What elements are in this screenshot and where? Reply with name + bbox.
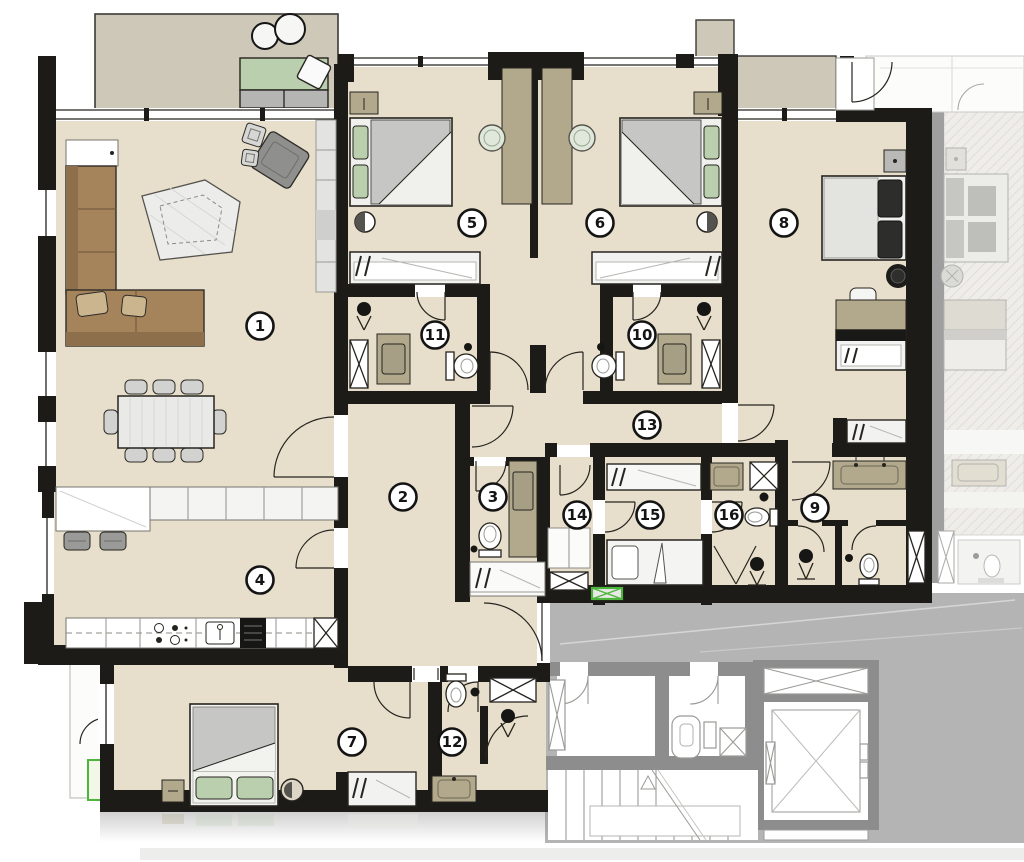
- room-number-marker-15: 15: [637, 502, 664, 529]
- room-number-marker-9: 9: [802, 495, 829, 522]
- svg-text:4: 4: [255, 571, 265, 589]
- svg-text:15: 15: [640, 506, 661, 524]
- bed-icon: [620, 118, 722, 206]
- svg-text:1: 1: [255, 317, 265, 335]
- bed-icon: [350, 118, 452, 206]
- pillow-icon: [353, 126, 368, 159]
- pillow-icon: [704, 126, 719, 159]
- wardrobe-hanger-icon: [350, 252, 480, 284]
- wardrobe-hanger-icon: [592, 252, 722, 284]
- room-number-marker-11: 11: [422, 322, 449, 349]
- built-in-cabinet: [316, 120, 336, 292]
- room-14: [548, 528, 590, 590]
- window-band: [584, 56, 718, 67]
- svg-text:8: 8: [779, 214, 789, 232]
- single-bed-icon: [607, 540, 703, 585]
- svg-text:3: 3: [488, 488, 498, 506]
- svg-text:12: 12: [442, 733, 463, 751]
- room-number-marker-2: 2: [390, 484, 417, 511]
- daybed-icon: [240, 54, 332, 108]
- room-number-marker-4: 4: [247, 567, 274, 594]
- rug-icon: [142, 180, 240, 260]
- double-washbasin-icon: [833, 457, 906, 489]
- room-number-marker-8: 8: [771, 210, 798, 237]
- wardrobe-hanger-icon: [836, 330, 906, 370]
- desk-chair-icon: [569, 125, 595, 151]
- bed-icon: [190, 704, 278, 806]
- svg-text:11: 11: [425, 326, 446, 344]
- shower-head-icon: [697, 302, 711, 316]
- pillow-icon: [704, 165, 719, 198]
- common-lobby: [557, 676, 655, 756]
- side-table-icon: [241, 149, 259, 167]
- terrace-bedroom8: [734, 56, 836, 112]
- room-number-marker-10: 10: [629, 322, 656, 349]
- pillow-icon: [237, 777, 273, 799]
- window-band: [736, 108, 836, 121]
- desk-icon: [502, 68, 532, 204]
- floor-reflection: [100, 812, 548, 842]
- floor-plan-canvas: 12345678910111213141516: [0, 0, 1024, 862]
- svg-text:13: 13: [637, 416, 658, 434]
- washbasin-icon: [432, 776, 476, 802]
- svg-text:16: 16: [719, 506, 740, 524]
- bedside-lamp-icon: [355, 212, 375, 232]
- bedside-lamp-icon: [281, 779, 303, 801]
- page-shadow-band: [140, 848, 1024, 860]
- window-band: [54, 108, 338, 121]
- room-number-marker-12: 12: [439, 729, 466, 756]
- pillow-icon: [353, 165, 368, 198]
- svg-text:9: 9: [810, 499, 820, 517]
- floor-plan-page: 12345678910111213141516: [0, 0, 1024, 862]
- wardrobe-hanger-icon: [847, 420, 906, 443]
- room-number-marker-3: 3: [480, 484, 507, 511]
- wardrobe-hanger-icon: [607, 464, 701, 490]
- desk-icon: [542, 68, 572, 204]
- desk-icon: [836, 300, 906, 330]
- adjacent-top-corridor: [866, 56, 1024, 112]
- desk-chair-icon: [479, 125, 505, 151]
- room-number-marker-13: 13: [634, 412, 661, 439]
- hall-closet: [470, 562, 545, 596]
- svg-text:7: 7: [347, 733, 357, 751]
- room-number-marker-16: 16: [716, 502, 743, 529]
- common-area: [545, 593, 1024, 843]
- svg-text:5: 5: [467, 214, 477, 232]
- kitchen-counter: [66, 618, 338, 648]
- room-number-marker-7: 7: [339, 729, 366, 756]
- entry-door-opening: [537, 603, 550, 663]
- svg-text:2: 2: [398, 488, 408, 506]
- pillow-icon: [196, 777, 232, 799]
- shower-head-icon: [357, 302, 371, 316]
- wardrobe-hanger-icon: [336, 772, 416, 806]
- window-band: [354, 56, 488, 67]
- svg-text:10: 10: [632, 326, 653, 344]
- kitchen-sink-icon: [206, 622, 234, 644]
- svg-text:14: 14: [567, 506, 588, 524]
- bedside-lamp-icon: [697, 212, 717, 232]
- elevator-2: [764, 830, 868, 840]
- room-number-marker-14: 14: [564, 502, 591, 529]
- room-number-marker-5: 5: [459, 210, 486, 237]
- room-number-marker-1: 1: [247, 313, 274, 340]
- bed-icon: [822, 176, 906, 260]
- room-number-marker-6: 6: [587, 210, 614, 237]
- svg-text:6: 6: [595, 214, 605, 232]
- stairs-icon: [548, 770, 758, 840]
- kitchen-upper-cabinets: [150, 487, 338, 520]
- electrical-panel-icon: [592, 588, 622, 599]
- elevator: [764, 668, 868, 840]
